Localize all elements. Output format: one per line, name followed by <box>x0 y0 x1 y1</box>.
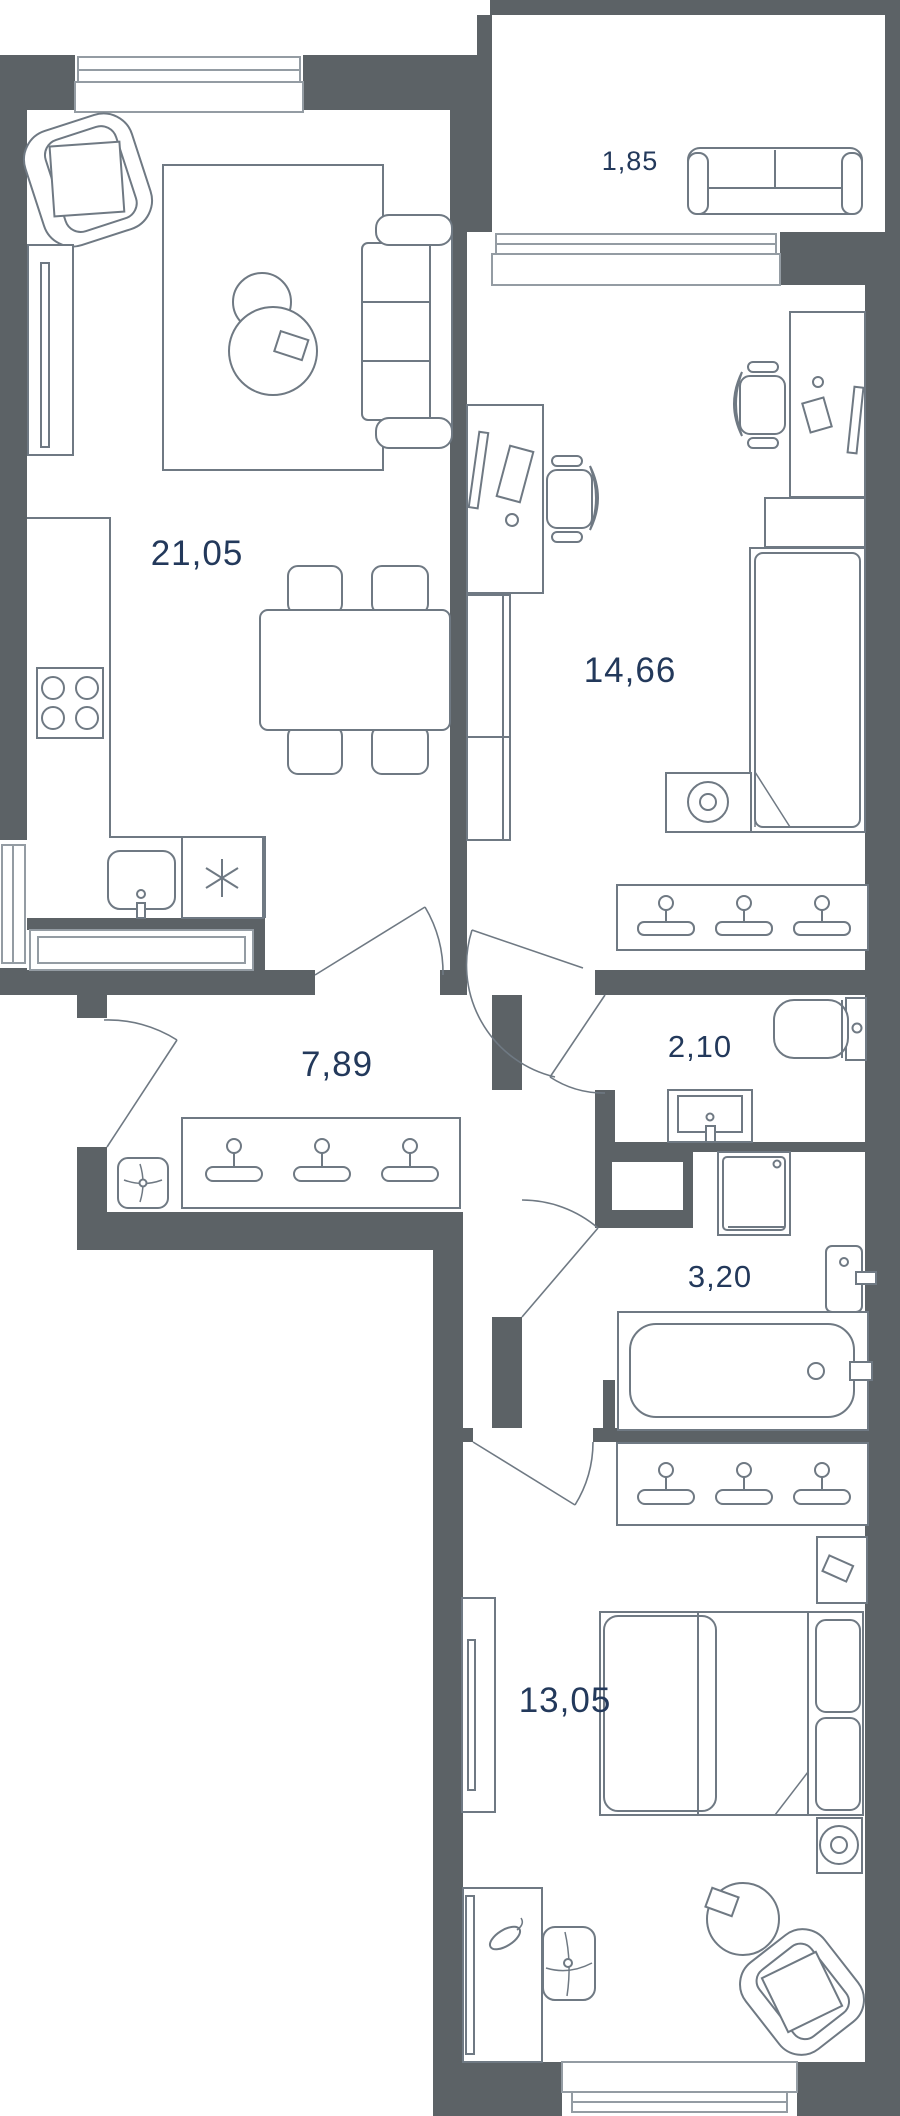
desk-left <box>467 405 543 593</box>
armchair <box>16 106 160 255</box>
balcony-window <box>492 232 780 285</box>
round-rug <box>705 1883 779 1955</box>
room-label-bedroom: 13,05 <box>519 1681 612 1720</box>
bathroom-door <box>522 1200 598 1317</box>
toilet-door <box>550 995 605 1093</box>
kitchen-side-window <box>0 840 27 968</box>
room-label-hallway: 7,89 <box>301 1045 373 1084</box>
floor-plan: 21,05 1,85 <box>0 0 900 2116</box>
tv-console <box>462 1598 495 1812</box>
room-toilet: 2,10 <box>668 998 866 1142</box>
corner-shelf <box>817 1537 867 1603</box>
wardrobe <box>467 595 510 840</box>
hanger-rack <box>617 885 868 950</box>
washing-machine <box>718 1152 790 1235</box>
armchair <box>729 1918 876 2066</box>
dining-table <box>260 610 450 730</box>
office-chair-left <box>547 456 598 542</box>
room-label-balcony: 1,85 <box>602 146 659 176</box>
vent-shaft <box>612 1162 683 1210</box>
room-label-bathroom: 3,20 <box>688 1259 752 1294</box>
room-balcony: 1,85 <box>602 146 862 214</box>
room-label-toilet: 2,10 <box>668 1029 732 1064</box>
room-label-bedroom-office: 14,66 <box>584 651 677 690</box>
single-bed <box>750 498 865 832</box>
living-room-door <box>315 907 443 975</box>
office-chair-right <box>734 362 785 448</box>
desk-right <box>790 312 865 497</box>
toilet-bowl <box>774 998 866 1060</box>
stove <box>37 668 103 738</box>
hanger-rack <box>617 1443 868 1525</box>
room-bedroom-office: 14,66 <box>467 312 868 950</box>
loveseat <box>688 148 862 214</box>
room-living-kitchen: 21,05 <box>16 106 452 918</box>
bedroom-door <box>473 1442 593 1505</box>
speaker-table <box>666 773 751 832</box>
swivel-chair <box>543 1927 595 2000</box>
coffee-tables <box>229 273 317 395</box>
kitchen-sink <box>108 851 175 918</box>
desk <box>463 1888 542 2062</box>
bedroom-window <box>562 2062 797 2116</box>
pouf <box>118 1158 168 1208</box>
washbasin <box>668 1090 752 1142</box>
floor-plan-svg: 21,05 1,85 <box>0 0 900 2116</box>
living-room-window <box>75 57 303 112</box>
bathtub <box>618 1312 872 1430</box>
tv-console <box>28 245 73 455</box>
fridge <box>182 837 263 918</box>
room-bedroom: 13,05 <box>462 1443 875 2066</box>
hanger-rack <box>182 1118 460 1208</box>
kitchen-wall-niche <box>30 930 253 970</box>
room-hallway: 7,89 <box>118 1045 460 1208</box>
room-label-living-kitchen: 21,05 <box>151 534 244 573</box>
sofa <box>362 215 452 448</box>
speaker-table <box>817 1818 862 1873</box>
entry-door <box>104 1020 177 1147</box>
double-bed <box>600 1612 863 1815</box>
room-bathroom: 3,20 <box>612 1152 876 1430</box>
